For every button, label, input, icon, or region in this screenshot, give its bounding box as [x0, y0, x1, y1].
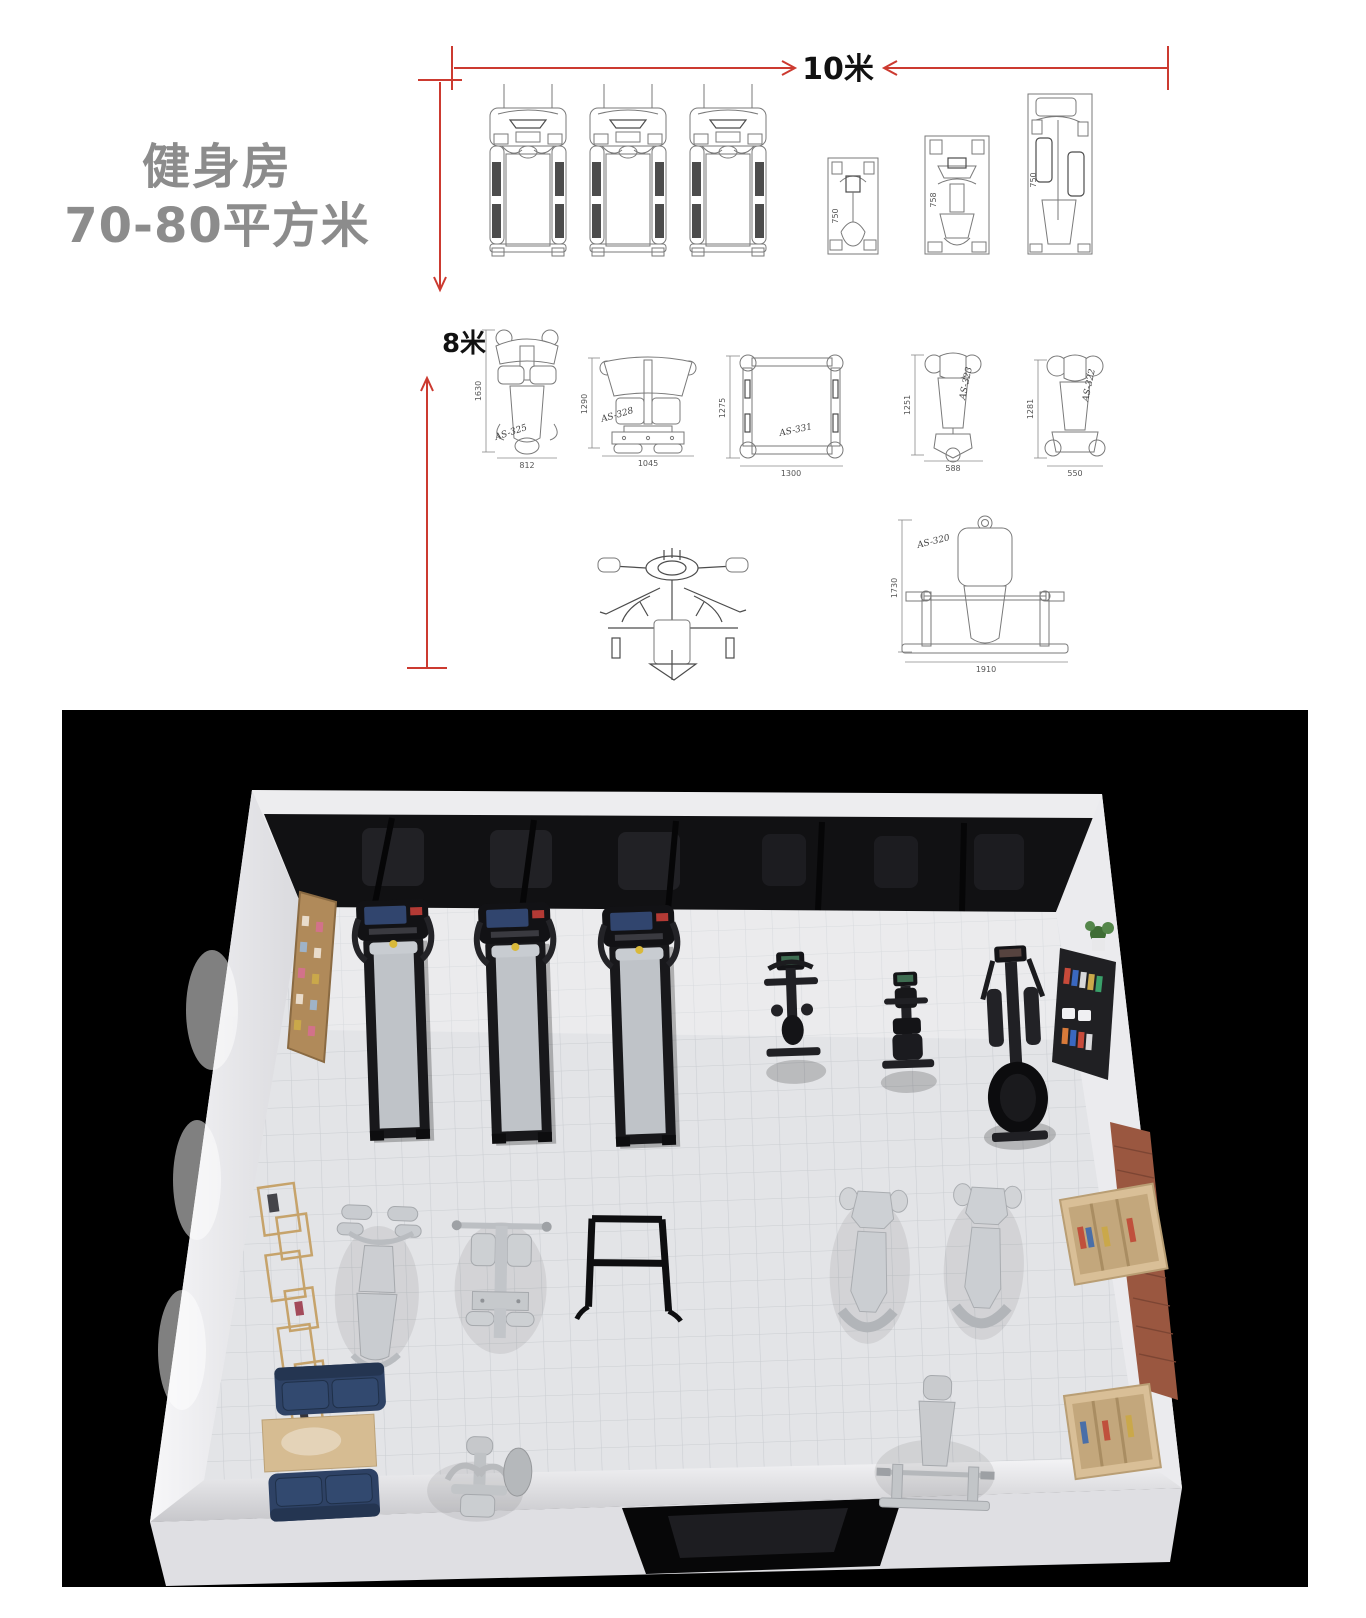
as320-label: AS-320 [915, 533, 951, 551]
cad-treadmill-1 [490, 84, 566, 256]
gym-layout-poster: 健身房 70-80平方米 10米 8米 [0, 0, 1366, 1618]
as323-height: 1251 [903, 395, 912, 415]
as320-width: 1910 [976, 665, 996, 674]
cad-as320: 1730 1910 AS-320 [890, 516, 1068, 674]
as328-height: 1290 [580, 394, 589, 414]
cad-as328: 1290 1045 AS-328 [580, 357, 696, 468]
cad-as325: 1630 812 AS-325 [474, 330, 558, 470]
render-panel: 70-80m2 [62, 710, 1308, 1587]
as322-height: 1281 [1026, 399, 1035, 419]
dim-width-label: 10米 [802, 52, 874, 87]
cad-elliptical-label: 750 [1029, 172, 1038, 187]
cad-elliptical: 750 [1028, 94, 1092, 254]
as331-label: AS-331 [778, 422, 814, 439]
as323-width: 588 [945, 464, 960, 473]
cad-as323: 1251 588 AS-323 [903, 353, 983, 473]
dimension-height-8m: 8米 [407, 80, 486, 668]
cad-bike-recumbent-label: 758 [929, 192, 938, 207]
as331-width: 1300 [781, 469, 801, 478]
wood-shelf-lower [1064, 1384, 1161, 1479]
cad-as322: 1281 550 AS-322 [1026, 355, 1105, 478]
as325-width: 812 [519, 461, 534, 470]
doorway-inner [668, 1508, 848, 1558]
cad-treadmill-2 [590, 84, 666, 256]
cad-as331: 1275 1300 AS-331 [718, 355, 843, 478]
cad-plan-drawing: 10米 8米 [0, 0, 1366, 710]
dim-height-label: 8米 [442, 329, 486, 359]
cad-functional-trainer [598, 548, 748, 680]
as331-height: 1275 [718, 398, 727, 418]
dimension-width-10m: 10米 [452, 46, 1168, 90]
as325-height: 1630 [474, 381, 483, 401]
cad-bike-recumbent: 758 [925, 136, 989, 254]
sofa-bottom [268, 1468, 380, 1522]
as320-height: 1730 [890, 578, 899, 598]
gym-3d-render [62, 710, 1308, 1587]
coffee-table [262, 1414, 377, 1472]
sofa-top [274, 1362, 386, 1416]
wood-shelf-upper [1060, 1184, 1168, 1285]
cad-bike-small: 750 [828, 158, 878, 254]
as322-width: 550 [1067, 469, 1082, 478]
cad-bike-small-label: 750 [831, 208, 840, 223]
cad-treadmill-3 [690, 84, 766, 256]
as328-width: 1045 [638, 459, 658, 468]
